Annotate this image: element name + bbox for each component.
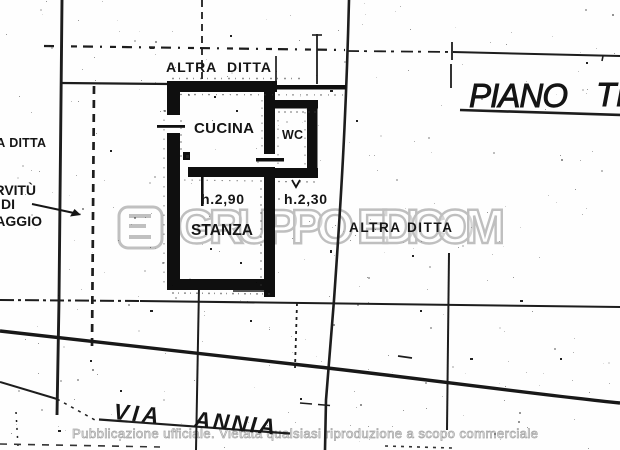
svg-text:h.2,30: h.2,30 bbox=[284, 191, 327, 207]
svg-text:ALTRA DITTA: ALTRA DITTA bbox=[349, 220, 452, 235]
svg-text:WC: WC bbox=[282, 128, 303, 142]
svg-text:RA DITTA: RA DITTA bbox=[0, 136, 46, 150]
svg-text:CUCINA: CUCINA bbox=[194, 120, 254, 137]
svg-text:PIANO: PIANO bbox=[469, 77, 568, 114]
svg-text:STANZA: STANZA bbox=[191, 222, 253, 239]
svg-text:Pubblicazione ufficiale. Vieta: Pubblicazione ufficiale. Vietata qualsia… bbox=[72, 426, 538, 441]
svg-text:h.2,90: h.2,90 bbox=[201, 191, 244, 207]
svg-text:VIA: VIA bbox=[113, 399, 160, 428]
svg-text:TE: TE bbox=[596, 76, 620, 113]
svg-text:DI: DI bbox=[1, 196, 15, 212]
svg-text:ALTRA DITTA: ALTRA DITTA bbox=[166, 59, 271, 75]
svg-text:PASSAGGIO: PASSAGGIO bbox=[0, 213, 42, 229]
